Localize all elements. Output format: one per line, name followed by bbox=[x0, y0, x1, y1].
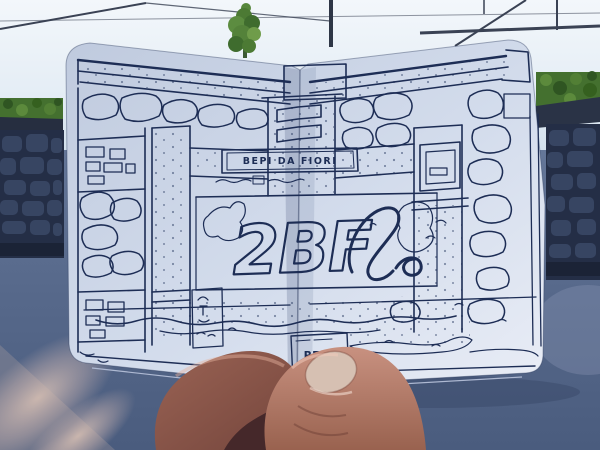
graffiti-text: 2BF bbox=[231, 207, 375, 291]
stone-wall-left bbox=[0, 130, 64, 258]
stone-wall-right bbox=[546, 124, 600, 280]
wall-coping-left bbox=[0, 117, 63, 132]
fence-post-center bbox=[329, 0, 333, 47]
plaque-text: BEPI DA FIORI bbox=[243, 156, 338, 167]
photo-scene: BEPI DA FIORI bbox=[0, 0, 600, 450]
hedge-left bbox=[0, 98, 63, 119]
photo-canvas: BEPI DA FIORI bbox=[0, 0, 600, 450]
